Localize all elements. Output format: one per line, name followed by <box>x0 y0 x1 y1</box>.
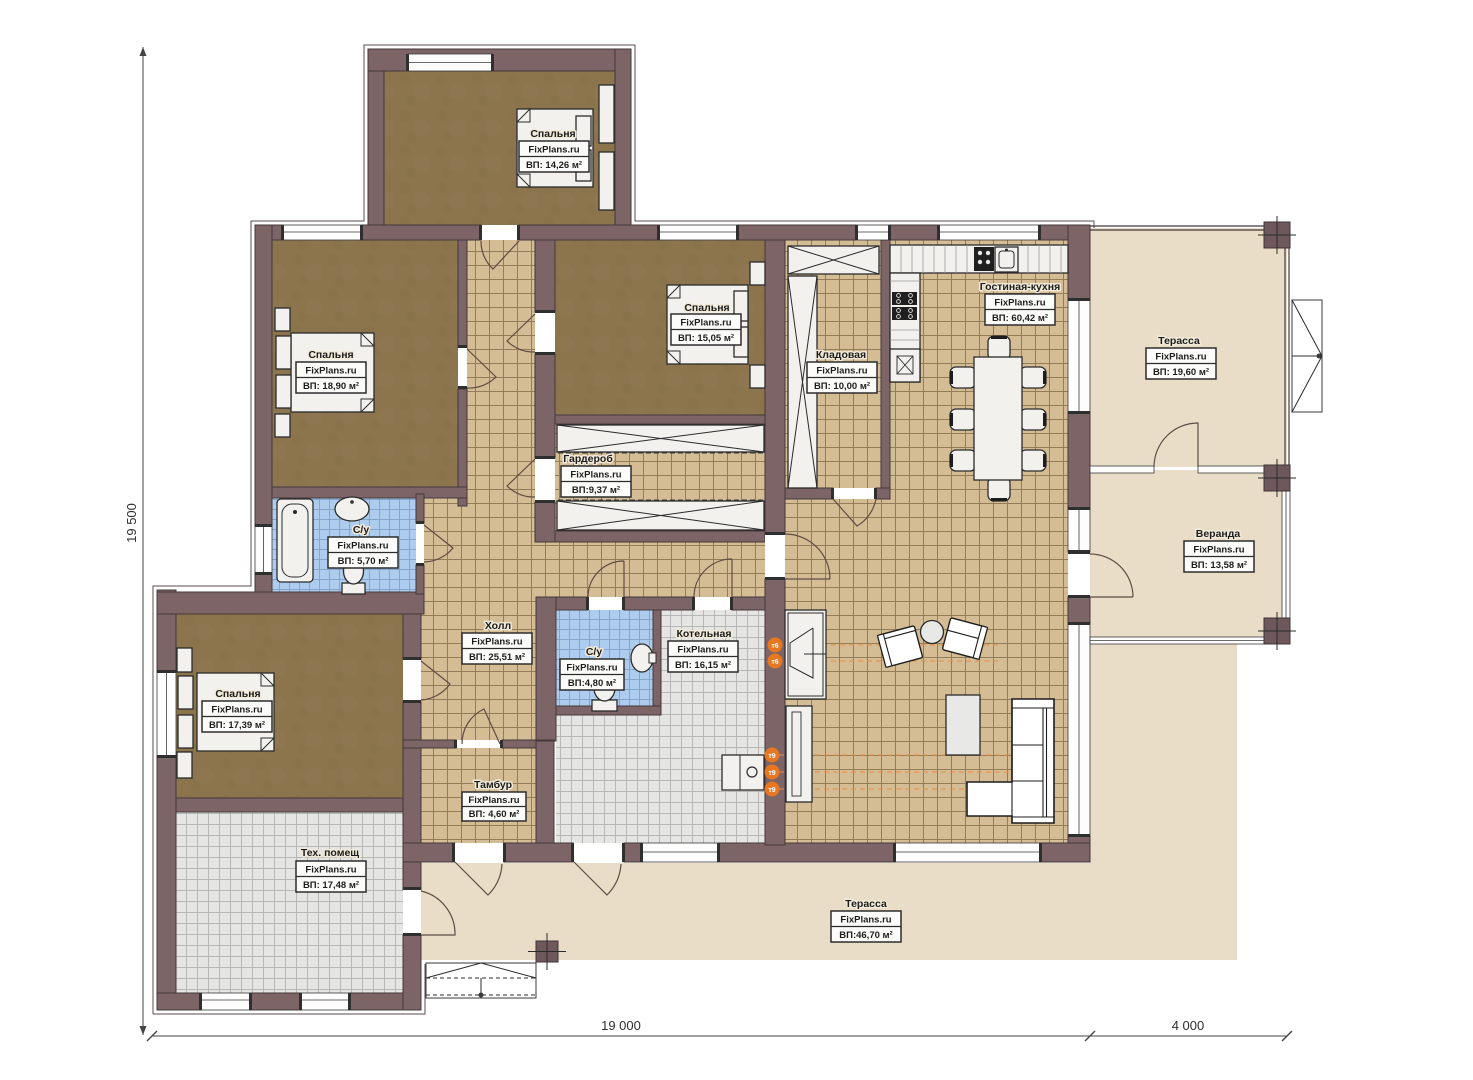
svg-text:ВП: 16,15 м²: ВП: 16,15 м² <box>675 660 731 671</box>
svg-text:FixPlans.ru: FixPlans.ru <box>680 318 731 329</box>
svg-text:ВП:46,70 м²: ВП:46,70 м² <box>839 930 892 941</box>
svg-text:Котельная: Котельная <box>677 628 732 640</box>
svg-text:FixPlans.ru: FixPlans.ru <box>528 145 579 156</box>
svg-text:19 000: 19 000 <box>601 1018 641 1033</box>
svg-text:FixPlans.ru: FixPlans.ru <box>1193 545 1244 556</box>
svg-text:Терасса: Терасса <box>1158 335 1200 347</box>
svg-text:ВП: 15,05 м²: ВП: 15,05 м² <box>678 333 734 344</box>
svg-text:т9: т9 <box>768 770 775 777</box>
svg-text:19 500: 19 500 <box>124 503 139 543</box>
svg-text:ВП: 17,39 м²: ВП: 17,39 м² <box>209 720 265 731</box>
svg-text:FixPlans.ru: FixPlans.ru <box>677 645 728 656</box>
svg-text:Спальня: Спальня <box>215 688 260 700</box>
svg-text:Спальня: Спальня <box>530 128 575 140</box>
svg-text:FixPlans.ru: FixPlans.ru <box>1155 352 1206 363</box>
svg-text:ВП:4,80 м²: ВП:4,80 м² <box>568 678 616 689</box>
svg-text:т9: т9 <box>768 787 775 794</box>
svg-text:ВП:9,37 м²: ВП:9,37 м² <box>572 485 620 496</box>
svg-text:ВП: 10,00 м²: ВП: 10,00 м² <box>814 381 870 392</box>
svg-text:FixPlans.ru: FixPlans.ru <box>840 915 891 926</box>
svg-text:FixPlans.ru: FixPlans.ru <box>570 470 621 481</box>
svg-text:Холл: Холл <box>485 620 511 632</box>
svg-text:т6: т6 <box>771 643 778 650</box>
svg-text:Веранда: Веранда <box>1196 528 1241 540</box>
svg-text:FixPlans.ru: FixPlans.ru <box>994 298 1045 309</box>
svg-text:FixPlans.ru: FixPlans.ru <box>211 705 262 716</box>
svg-text:FixPlans.ru: FixPlans.ru <box>566 663 617 674</box>
svg-text:Тамбур: Тамбур <box>474 779 512 791</box>
svg-text:ВП: 13,58 м²: ВП: 13,58 м² <box>1191 560 1247 571</box>
svg-text:FixPlans.ru: FixPlans.ru <box>468 795 519 806</box>
svg-text:ВП: 25,51 м²: ВП: 25,51 м² <box>469 652 525 663</box>
svg-text:4 000: 4 000 <box>1172 1018 1205 1033</box>
svg-text:Спальня: Спальня <box>684 302 729 314</box>
svg-text:FixPlans.ru: FixPlans.ru <box>337 541 388 552</box>
svg-text:Кладовая: Кладовая <box>816 349 866 361</box>
svg-text:ВП: 60,42 м²: ВП: 60,42 м² <box>992 313 1048 324</box>
svg-text:С/у: С/у <box>353 524 370 536</box>
svg-text:FixPlans.ru: FixPlans.ru <box>471 637 522 648</box>
svg-text:FixPlans.ru: FixPlans.ru <box>305 366 356 377</box>
svg-text:ВП: 19,60 м²: ВП: 19,60 м² <box>1153 367 1209 378</box>
svg-text:FixPlans.ru: FixPlans.ru <box>816 366 867 377</box>
svg-text:т9: т9 <box>768 753 775 760</box>
svg-text:ВП: 14,26 м²: ВП: 14,26 м² <box>526 160 582 171</box>
svg-text:С/у: С/у <box>586 646 603 658</box>
svg-text:Тех. помещ: Тех. помещ <box>301 847 359 859</box>
svg-text:FixPlans.ru: FixPlans.ru <box>305 865 356 876</box>
svg-text:Терасса: Терасса <box>845 898 887 910</box>
svg-text:т6: т6 <box>771 659 778 666</box>
svg-text:ВП: 5,70 м²: ВП: 5,70 м² <box>338 556 389 567</box>
svg-text:ВП: 4,60 м²: ВП: 4,60 м² <box>469 809 520 820</box>
svg-text:Гардероб: Гардероб <box>563 453 613 465</box>
svg-text:ВП: 18,90 м²: ВП: 18,90 м² <box>303 381 359 392</box>
svg-text:ВП: 17,48 м²: ВП: 17,48 м² <box>303 880 359 891</box>
svg-text:Гостиная-кухня: Гостиная-кухня <box>980 281 1060 293</box>
svg-text:Спальня: Спальня <box>308 349 353 361</box>
